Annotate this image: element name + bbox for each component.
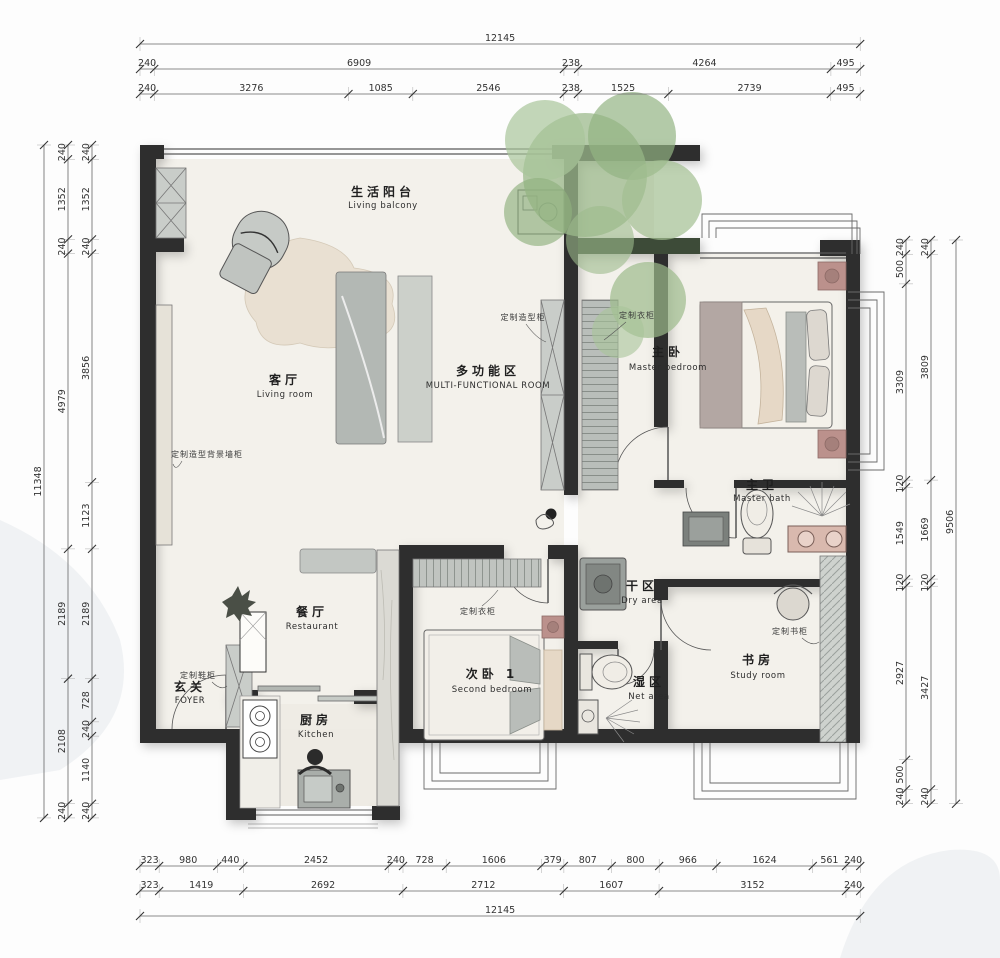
room-label-foyer-en: FOYER — [175, 696, 206, 706]
dim-value: 2712 — [471, 880, 495, 891]
dim-value: 240 — [81, 720, 92, 738]
dim-value: 807 — [579, 855, 597, 866]
dim-value: 2189 — [57, 602, 68, 626]
wall-balcony-stub — [156, 238, 184, 252]
room-label-master-bedroom-en: Master bedroom — [629, 363, 707, 373]
dim-value: 561 — [820, 855, 838, 866]
dim-value: 495 — [837, 58, 855, 69]
room-label-living-room-zh: 客厅 — [268, 372, 301, 387]
dim-value: 240 — [57, 237, 68, 255]
dim-value: 2546 — [476, 83, 500, 94]
dim-value: 3309 — [895, 370, 906, 394]
kitchen-window — [248, 810, 378, 828]
bay-window-bedroom2 — [424, 743, 556, 789]
dim-value: 120 — [920, 574, 931, 592]
dim-value: 240 — [81, 143, 92, 161]
dim-value: 1352 — [57, 187, 68, 211]
room-label-master-bath-zh: 主卫 — [746, 477, 778, 492]
dim-value: 240 — [57, 143, 68, 161]
room-label-wet-area-zh: 湿区 — [633, 674, 665, 689]
dim-value: 2692 — [311, 880, 335, 891]
wall-divider-b — [548, 545, 578, 559]
dim-value: 120 — [895, 475, 906, 493]
dim-value: 1085 — [369, 83, 393, 94]
dim-value: 240 — [138, 83, 156, 94]
dim-value: 2189 — [81, 602, 92, 626]
room-label-kitchen-en: Kitchen — [298, 730, 334, 740]
dim-value: 2108 — [57, 729, 68, 753]
study-bookcase — [820, 556, 846, 742]
dim-value: 2927 — [895, 661, 906, 685]
dim-value: 240 — [387, 855, 405, 866]
dim-row-1: 24069092384264495 — [136, 58, 864, 76]
dim-value: 11348 — [33, 466, 44, 496]
dim-value: 980 — [179, 855, 197, 866]
dim-value: 3427 — [920, 676, 931, 700]
dim-value: 500 — [895, 260, 906, 278]
bedroom2-wardrobe — [413, 559, 541, 587]
dim-value: 495 — [836, 83, 854, 94]
tv-wall — [336, 272, 432, 444]
cabinet-label-background-wall: 定制造型背景墙柜 — [171, 449, 243, 459]
dim-value: 2452 — [304, 855, 328, 866]
dim-value: 240 — [895, 787, 906, 805]
dim-row-3: 3239804402452240728160637980780096616245… — [136, 855, 864, 873]
room-label-living-room-en: Living room — [257, 390, 314, 400]
dim-value: 240 — [81, 237, 92, 255]
dim-value: 2739 — [737, 83, 761, 94]
cabinet-label-shaped: 定制造型柜 — [501, 312, 546, 322]
room-label-second-bedroom-en: Second bedroom — [452, 685, 532, 695]
wall-balcony-jamb-left — [156, 145, 164, 159]
dim-value: 1352 — [81, 187, 92, 211]
cabinet-label-shoe: 定制鞋柜 — [180, 670, 216, 680]
dim-value: 728 — [416, 855, 434, 866]
dim-value: 728 — [81, 691, 92, 709]
dim-value: 323 — [141, 855, 159, 866]
dim-value: 240 — [920, 787, 931, 805]
dim-value: 440 — [221, 855, 239, 866]
dim-value: 1549 — [895, 521, 906, 545]
dim-value: 500 — [895, 766, 906, 784]
dim-value: 4979 — [57, 389, 68, 413]
wall-bedroom2-left — [399, 559, 413, 729]
dim-value: 240 — [81, 802, 92, 820]
master-bed — [700, 302, 832, 428]
dim-value: 240 — [844, 855, 862, 866]
room-label-multi-functional-en: MULTI-FUNCTIONAL ROOM — [426, 381, 551, 391]
dim-value: 1123 — [81, 504, 92, 528]
room-label-multi-functional-zh: 多功能区 — [456, 363, 520, 378]
dim-value: 379 — [544, 855, 562, 866]
dim-value: 1419 — [189, 880, 213, 891]
dim-value: 1624 — [753, 855, 777, 866]
room-label-study-room-en: Study room — [730, 671, 785, 681]
dim-value: 12145 — [485, 905, 515, 916]
room-label-kitchen-zh: 厨房 — [300, 712, 332, 727]
floor-plan-canvas: 生活阳台 Living balcony 客厅 Living room 多功能区 … — [0, 0, 1000, 958]
dim-value: 238 — [562, 83, 580, 94]
dim-value: 1607 — [599, 880, 623, 891]
dim-value: 240 — [138, 58, 156, 69]
dim-value: 240 — [895, 238, 906, 256]
dim-value: 12145 — [485, 33, 515, 44]
dim-row-2: 24032761085254623815252739495 — [136, 83, 864, 101]
dim-value: 1525 — [611, 83, 635, 94]
dim-value: 240 — [57, 802, 68, 820]
room-label-dry-area-en: Dry area — [621, 596, 663, 606]
room-label-restaurant-zh: 餐厅 — [296, 604, 328, 619]
room-label-wet-area-en: Net area — [628, 692, 669, 702]
dim-value: 3809 — [920, 355, 931, 379]
wall-divider-a — [399, 545, 504, 559]
dim-value: 3152 — [740, 880, 764, 891]
floor-plan-svg: 生活阳台 Living balcony 客厅 Living room 多功能区 … — [0, 0, 1000, 958]
cabinet-label-wardrobe-corridor: 定制衣柜 — [619, 310, 655, 320]
dim-row-11: 9506 — [945, 236, 963, 808]
room-label-living-balcony-en: Living balcony — [348, 201, 418, 211]
dry-area-washer — [580, 558, 626, 610]
room-label-study-room-zh: 书房 — [742, 652, 774, 667]
room-label-foyer-zh: 玄关 — [174, 679, 206, 694]
dim-row-10: 240380916691203427240 — [920, 236, 938, 808]
cabinet-label-wardrobe-bedroom2: 定制衣柜 — [460, 606, 496, 616]
dim-value: 323 — [141, 880, 159, 891]
wall-right — [846, 254, 860, 743]
wall-left — [140, 145, 156, 743]
room-label-dry-area-zh: 干区 — [626, 579, 658, 593]
wall-corridor-lower — [564, 545, 578, 743]
dim-value: 1140 — [81, 758, 92, 782]
dim-value: 120 — [895, 574, 906, 592]
dim-value: 3856 — [81, 356, 92, 380]
room-label-living-balcony-zh: 生活阳台 — [351, 184, 415, 199]
bay-window-study — [694, 743, 856, 799]
room-label-restaurant-en: Restaurant — [286, 622, 339, 632]
dim-value: 240 — [844, 880, 862, 891]
corridor-shaped-cabinet — [541, 300, 564, 490]
dim-value: 800 — [626, 855, 644, 866]
background-wall-cabinet — [156, 305, 172, 545]
dim-value: 6909 — [347, 58, 371, 69]
dim-value: 238 — [562, 58, 580, 69]
dim-value: 1606 — [482, 855, 506, 866]
dim-value: 3276 — [239, 83, 263, 94]
dim-value: 966 — [679, 855, 697, 866]
room-label-second-bedroom-zh: 次卧 1 — [466, 666, 519, 681]
dim-value: 9506 — [945, 510, 956, 534]
dim-value: 240 — [920, 238, 931, 256]
wall-foyer-bottom — [140, 729, 240, 743]
wall-bath-top-a — [654, 480, 684, 488]
balcony-cabinet — [156, 168, 186, 238]
room-label-master-bedroom-zh: 主卧 — [652, 344, 684, 359]
dim-row-9: 240500330912015491202927500240 — [895, 236, 913, 808]
room-label-master-bath-en: Master bath — [733, 494, 791, 504]
restaurant-feature-wall — [377, 550, 399, 806]
dim-value: 4264 — [692, 58, 716, 69]
dim-value: 1669 — [920, 517, 931, 541]
wall-dry-wet-divider — [578, 641, 618, 649]
dim-row-4: 32314192692271216073152240 — [136, 880, 864, 898]
dim-row-5: 12145 — [136, 905, 864, 923]
dim-row-0: 12145 — [136, 33, 864, 51]
wall-bath-bottom — [654, 579, 846, 587]
cabinet-label-bookcase: 定制书柜 — [772, 626, 808, 636]
